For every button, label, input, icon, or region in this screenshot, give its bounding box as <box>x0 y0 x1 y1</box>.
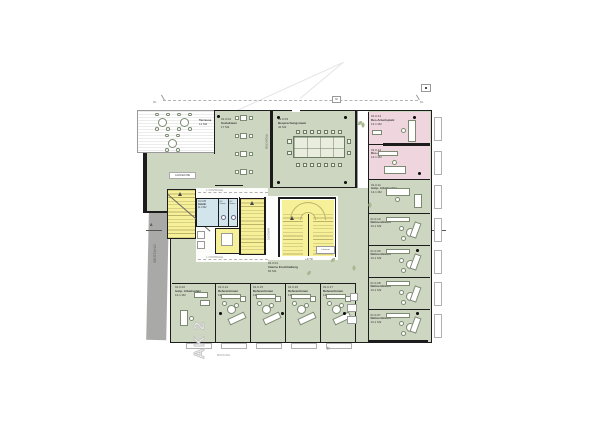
wall <box>273 187 357 189</box>
wall <box>264 197 266 255</box>
cabinet <box>386 281 410 286</box>
chair <box>401 300 406 305</box>
dimension-box: 60 <box>332 96 341 103</box>
chair <box>395 197 400 202</box>
toilet <box>221 215 226 220</box>
central-stair <box>240 198 265 255</box>
dimension-tick <box>161 95 165 101</box>
balcony <box>434 314 442 338</box>
wc-damen-label: WC Damen <box>220 201 228 206</box>
plan-big-label: AK 2 <box>191 321 208 359</box>
column-dot <box>416 312 419 315</box>
chair <box>399 226 404 231</box>
desk <box>408 120 416 142</box>
thick-wall <box>368 340 428 344</box>
balcony <box>221 343 247 349</box>
chair <box>331 163 336 168</box>
chair <box>303 130 308 135</box>
balcony <box>434 185 442 209</box>
column-dot <box>219 312 222 315</box>
chair <box>296 130 301 135</box>
chair <box>401 331 406 336</box>
chair <box>249 170 253 174</box>
wall <box>215 283 216 343</box>
chair <box>304 303 309 308</box>
section-cut-11: 11 <box>326 346 331 350</box>
chair <box>399 321 404 326</box>
chair <box>327 301 332 306</box>
column-dot <box>416 249 419 252</box>
wall <box>270 110 273 188</box>
chair <box>324 130 329 135</box>
desk <box>180 310 188 326</box>
cabinet <box>378 151 398 156</box>
chair <box>347 139 352 144</box>
chair <box>235 134 239 138</box>
plan-sub-label: BILDUNG <box>217 354 230 358</box>
projektion-label: PROJEKTION <box>265 134 268 149</box>
elevator-car <box>221 233 233 246</box>
column-dot <box>277 181 280 184</box>
chair <box>235 170 239 174</box>
fixture <box>197 231 205 239</box>
wall <box>355 283 356 343</box>
level-label: +3.70 <box>305 258 313 262</box>
chair <box>235 152 239 156</box>
chair <box>155 113 159 117</box>
chair <box>317 130 322 135</box>
control-line <box>198 192 268 193</box>
chair <box>310 130 315 135</box>
construction-line <box>300 62 343 98</box>
chair <box>249 116 253 120</box>
anrichte-label: ANRICHTE <box>267 228 270 240</box>
stair-direction-arrow <box>250 201 254 205</box>
thick-wall <box>383 143 430 146</box>
balcony <box>434 282 442 306</box>
table <box>240 115 247 121</box>
chair <box>177 127 181 131</box>
chair <box>338 130 343 135</box>
column-dot <box>343 312 346 315</box>
garderobe-label-box: GARDEROBE <box>169 172 196 179</box>
chair <box>222 301 227 306</box>
grid-label-right: B1 <box>420 101 424 105</box>
chair <box>188 127 192 131</box>
chair <box>165 134 169 138</box>
chair <box>155 127 159 131</box>
chair <box>165 148 169 152</box>
chair <box>249 134 253 138</box>
chair <box>188 113 192 117</box>
section-line-left <box>146 230 162 231</box>
column-dot <box>413 116 416 119</box>
floor-plan: B1 B1 60 BESTAND A A Terrasse11 M2 01.0.… <box>0 0 600 437</box>
table <box>240 133 247 139</box>
wall <box>278 197 280 257</box>
chair <box>177 113 181 117</box>
chair <box>287 139 292 144</box>
column-dot <box>344 116 347 119</box>
chair <box>166 127 170 131</box>
cabinet <box>291 294 311 299</box>
wall <box>143 153 147 213</box>
chair <box>324 163 329 168</box>
chair <box>399 290 404 295</box>
chair <box>166 113 170 117</box>
balcony <box>256 343 282 349</box>
dimension-line <box>163 100 418 101</box>
stair-divider-wall <box>308 214 309 256</box>
column-dot <box>217 115 220 118</box>
cabinet <box>221 294 241 299</box>
chair <box>269 303 274 308</box>
wc-herren-label: WC Herren <box>230 201 238 206</box>
balcony <box>434 218 442 242</box>
cabinet <box>326 294 346 299</box>
chair <box>401 128 406 133</box>
room-label-sanitaer: 01.0.05Sanitär11.0 M2 <box>198 200 206 209</box>
cabinet <box>310 296 316 302</box>
stair-treads <box>283 214 303 256</box>
wall <box>214 110 216 154</box>
chair <box>331 130 336 135</box>
cabinet <box>372 130 382 135</box>
fixture <box>197 241 205 249</box>
terrace <box>137 110 215 153</box>
cabinet <box>386 217 410 222</box>
construction-line <box>237 62 344 111</box>
wall <box>278 197 336 199</box>
column-dot <box>281 312 284 315</box>
control-label-2: 1. KONTROLLE <box>206 256 223 259</box>
wall <box>215 185 243 187</box>
control-line <box>198 259 268 260</box>
chair <box>176 134 180 138</box>
chair <box>347 151 352 156</box>
cabinet <box>386 249 410 254</box>
chair <box>392 160 397 165</box>
chair <box>401 268 406 273</box>
cabinet <box>200 300 210 306</box>
desk <box>384 166 406 174</box>
chair <box>401 236 406 241</box>
room-label-erschliessung: 01.0.01Interne Erschließung81 M2 <box>268 262 298 273</box>
chair <box>303 163 308 168</box>
chair <box>234 303 239 308</box>
control-label-1: 1. KONTROLLE <box>206 189 223 192</box>
round-table <box>168 139 177 148</box>
balcony <box>434 250 442 274</box>
wall <box>320 283 321 343</box>
round-table <box>180 118 189 127</box>
chair <box>257 301 262 306</box>
chair <box>338 163 343 168</box>
grid-label-left: B1 <box>153 101 157 105</box>
printer-cabinet <box>347 304 357 312</box>
chair <box>292 301 297 306</box>
wall <box>172 283 355 284</box>
chair <box>339 303 344 308</box>
printer-cabinet <box>350 293 358 301</box>
balcony <box>434 151 442 175</box>
room-label: 01.0.13Res.Arbeitsplatz13.1 M2 <box>371 115 395 126</box>
section-label-left: A <box>150 223 153 227</box>
cabinet <box>256 294 276 299</box>
chair <box>310 163 315 168</box>
column-dot <box>277 116 280 119</box>
door-gap <box>292 109 300 112</box>
chair <box>296 163 301 168</box>
cabinet <box>275 296 281 302</box>
cabinet <box>386 313 410 318</box>
table <box>240 169 247 175</box>
luftraum-box: Luftraum <box>316 246 335 254</box>
stair-direction-arrow <box>290 216 294 220</box>
cabinet <box>414 194 422 208</box>
room-label-besprechung: 01.0.03Besprechungsraum42 M2 <box>278 118 306 129</box>
chair <box>317 163 322 168</box>
stair-direction-arrow <box>178 192 182 196</box>
cabinet <box>240 296 246 302</box>
chair <box>249 152 253 156</box>
balcony <box>291 343 317 349</box>
column-dot <box>418 172 421 175</box>
conference-table <box>293 136 345 158</box>
chair <box>176 148 180 152</box>
wall <box>239 197 241 255</box>
cabinet <box>194 292 208 298</box>
desk <box>386 188 410 196</box>
room-label-terrasse: Terrasse11 M2 <box>199 119 211 127</box>
chair <box>287 151 292 156</box>
existing-building-label: BESTAND <box>152 244 157 263</box>
toilet <box>231 215 236 220</box>
wall <box>285 283 286 343</box>
column-dot <box>344 181 347 184</box>
wall <box>250 283 251 343</box>
chair <box>235 116 239 120</box>
printer-cabinet <box>347 316 357 324</box>
round-table <box>158 118 167 127</box>
balcony <box>434 117 442 141</box>
chair <box>399 258 404 263</box>
table <box>240 151 247 157</box>
